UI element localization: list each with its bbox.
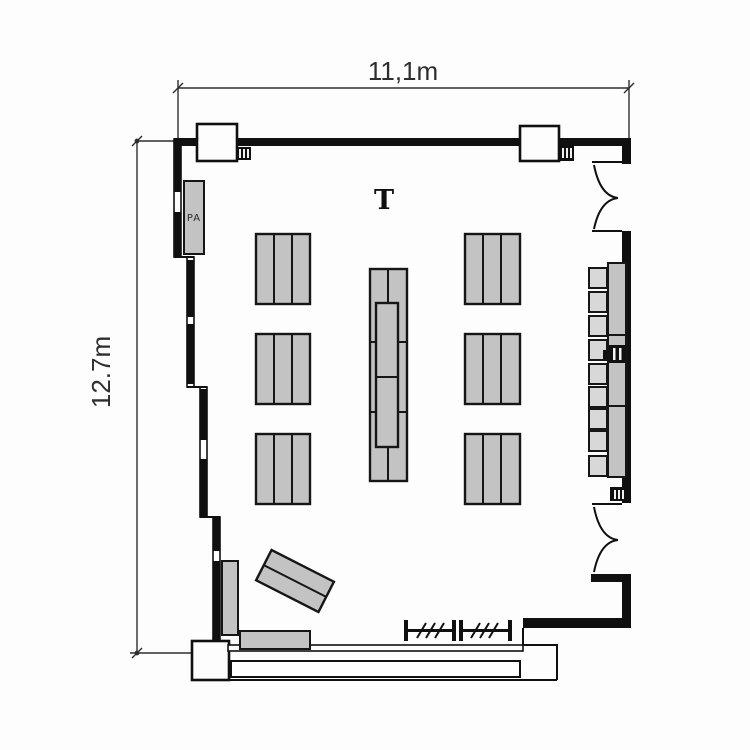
chair <box>589 316 607 336</box>
width-dimension-label: 11,1m <box>368 56 438 86</box>
height-dimension-label: 12.7m <box>86 336 116 408</box>
side-table-horizontal <box>240 631 310 649</box>
wall-bench <box>608 263 626 477</box>
triple-table <box>465 434 520 504</box>
chair <box>589 387 607 407</box>
door-top-right <box>594 165 618 229</box>
chair <box>589 364 607 384</box>
bottom-left-pillar <box>192 641 229 680</box>
column-left <box>197 124 237 161</box>
coat-rack-right <box>459 620 512 641</box>
vent-right-column <box>559 145 574 161</box>
angled-table <box>256 550 334 612</box>
table-group-left <box>256 234 310 504</box>
triple-table <box>256 334 310 404</box>
side-table-vertical <box>222 561 238 635</box>
bottom-threshold <box>231 661 520 677</box>
coat-rack-left <box>404 620 456 641</box>
triple-table <box>465 334 520 404</box>
top-dimension: 11,1m <box>173 56 634 140</box>
floor-plan-drawing: 11,1m 12.7m <box>0 0 750 750</box>
vent-left-column <box>236 147 251 160</box>
chair <box>589 292 607 312</box>
triple-table <box>465 234 520 304</box>
triple-table <box>256 434 310 504</box>
pa-label: PA <box>187 213 201 224</box>
triple-table <box>256 234 310 304</box>
column-right <box>520 126 559 161</box>
center-table-assembly <box>370 269 407 481</box>
chair <box>589 268 607 288</box>
pa-unit: PA <box>184 181 204 254</box>
chair <box>589 431 607 451</box>
floor-plan-canvas: 11,1m 12.7m <box>0 0 750 750</box>
table-group-right <box>465 234 520 504</box>
chair <box>589 409 607 429</box>
vent-bottom-right <box>610 487 628 501</box>
chair <box>589 456 607 476</box>
door-bottom-right <box>594 507 618 572</box>
top-wall <box>174 138 631 146</box>
chair-row <box>589 268 607 476</box>
projector-symbol: T <box>374 185 394 216</box>
